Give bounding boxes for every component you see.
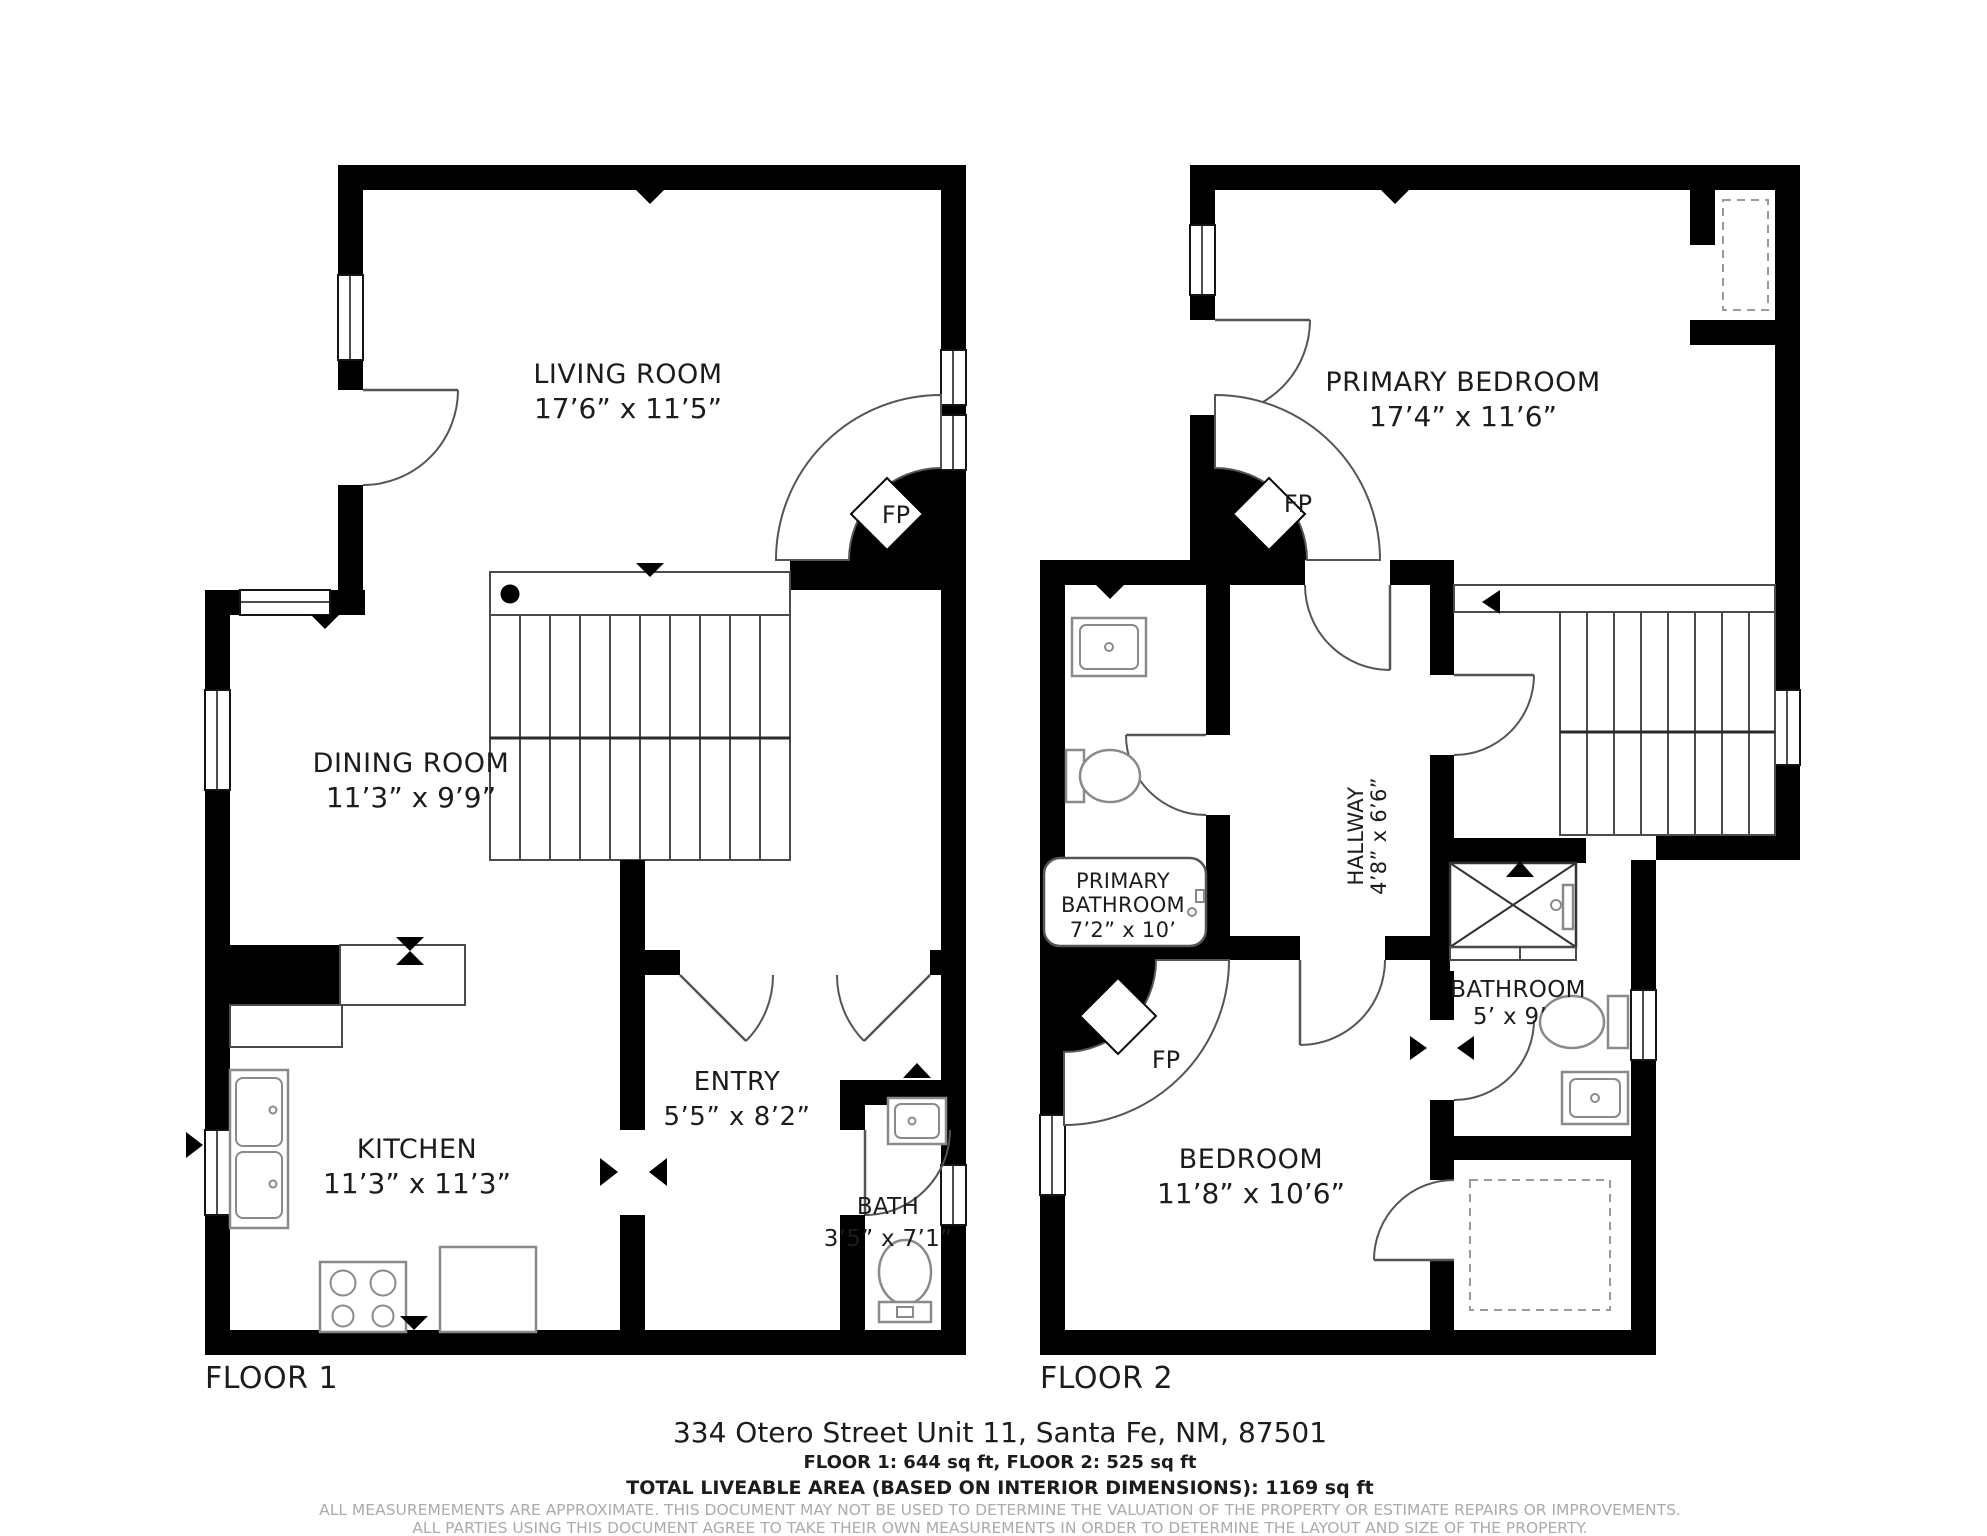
primary-bathroom-label-line1: PRIMARY <box>1076 869 1170 893</box>
dining-room-label: DINING ROOM <box>313 748 510 779</box>
bedroom-dims: 11’8” x 10’6” <box>1157 1177 1345 1210</box>
floorplan-drawing: FP <box>0 0 1987 1536</box>
sink-icon <box>230 1070 288 1228</box>
disclaimer-line2: ALL PARTIES USING THIS DOCUMENT AGREE TO… <box>412 1519 1587 1536</box>
refrigerator-icon <box>440 1247 536 1332</box>
entry-label: ENTRY <box>694 1067 781 1097</box>
living-room-label: LIVING ROOM <box>533 359 722 390</box>
stove-icon <box>320 1262 406 1332</box>
door-arc <box>363 390 458 485</box>
counter <box>230 1005 342 1047</box>
entry-dims: 5’5” x 8’2” <box>663 1102 810 1132</box>
kitchen-label: KITCHEN <box>357 1134 478 1165</box>
sink-icon <box>1562 1072 1628 1124</box>
opening-marker-icon <box>600 1158 667 1186</box>
bedroom-label: BEDROOM <box>1179 1144 1323 1175</box>
floorplan-page: FP <box>0 0 1987 1536</box>
toilet-icon <box>1066 750 1140 802</box>
disclaimer-line1: ALL MEASUREMEMENTS ARE APPROXIMATE. THIS… <box>319 1501 1681 1519</box>
fireplace-icon: FP <box>1064 960 1229 1125</box>
closet <box>1470 1180 1610 1310</box>
staircase <box>1454 585 1775 835</box>
front-door-arc <box>680 975 930 1041</box>
sink-icon <box>1072 618 1146 676</box>
living-room-dims: 17’6” x 11’5” <box>534 392 722 425</box>
direction-marker-icon <box>186 1132 203 1158</box>
direction-marker-icon <box>903 1063 931 1078</box>
hallway-label: HALLWAY <box>1344 787 1368 886</box>
fireplace-icon: FP <box>1215 395 1380 560</box>
staircase <box>490 563 790 860</box>
total-area-text: TOTAL LIVEABLE AREA (BASED ON INTERIOR D… <box>626 1477 1373 1499</box>
fireplace-label: FP <box>1284 490 1312 518</box>
newel-post-icon <box>501 585 520 604</box>
primary-bathroom-label-line2: BATHROOM <box>1061 893 1185 917</box>
sink-icon <box>888 1063 946 1144</box>
floor-areas-text: FLOOR 1: 644 sq ft, FLOOR 2: 525 sq ft <box>803 1452 1196 1473</box>
opening-marker-icon <box>1410 1036 1474 1060</box>
floor1-plan: FP <box>186 165 966 1396</box>
floor2-label: FLOOR 2 <box>1040 1361 1173 1396</box>
fireplace-label: FP <box>882 501 910 529</box>
shower-icon <box>1450 861 1576 960</box>
hallway-dims: 4’8” x 6’6” <box>1367 777 1391 895</box>
toilet-icon <box>1540 996 1628 1048</box>
primary-bedroom-dims: 17’4” x 11’6” <box>1369 400 1557 433</box>
address-title: 334 Otero Street Unit 11, Santa Fe, NM, … <box>673 1416 1327 1449</box>
fireplace-icon: FP <box>776 395 966 590</box>
counter-peninsula <box>340 945 465 1005</box>
floor2-plan: FP <box>1040 165 1800 1396</box>
primary-bedroom-label: PRIMARY BEDROOM <box>1325 367 1600 398</box>
dining-room-dims: 11’3” x 9’9” <box>326 781 496 814</box>
kitchen-dims: 11’3” x 11’3” <box>323 1167 511 1200</box>
toilet-icon <box>879 1240 931 1322</box>
bathroom-label: BATHROOM <box>1450 977 1586 1003</box>
closet <box>1723 200 1768 310</box>
fireplace-label: FP <box>1152 1046 1180 1074</box>
footer: 334 Otero Street Unit 11, Santa Fe, NM, … <box>319 1416 1681 1536</box>
primary-bathroom-dims: 7’2” x 10’ <box>1070 918 1176 942</box>
bathroom-dims: 5’ x 9’ <box>1473 1004 1547 1030</box>
bath-dims: 3’5” x 7’1” <box>824 1226 953 1252</box>
floor1-label: FLOOR 1 <box>205 1361 338 1396</box>
bath-label: BATH <box>857 1194 919 1220</box>
